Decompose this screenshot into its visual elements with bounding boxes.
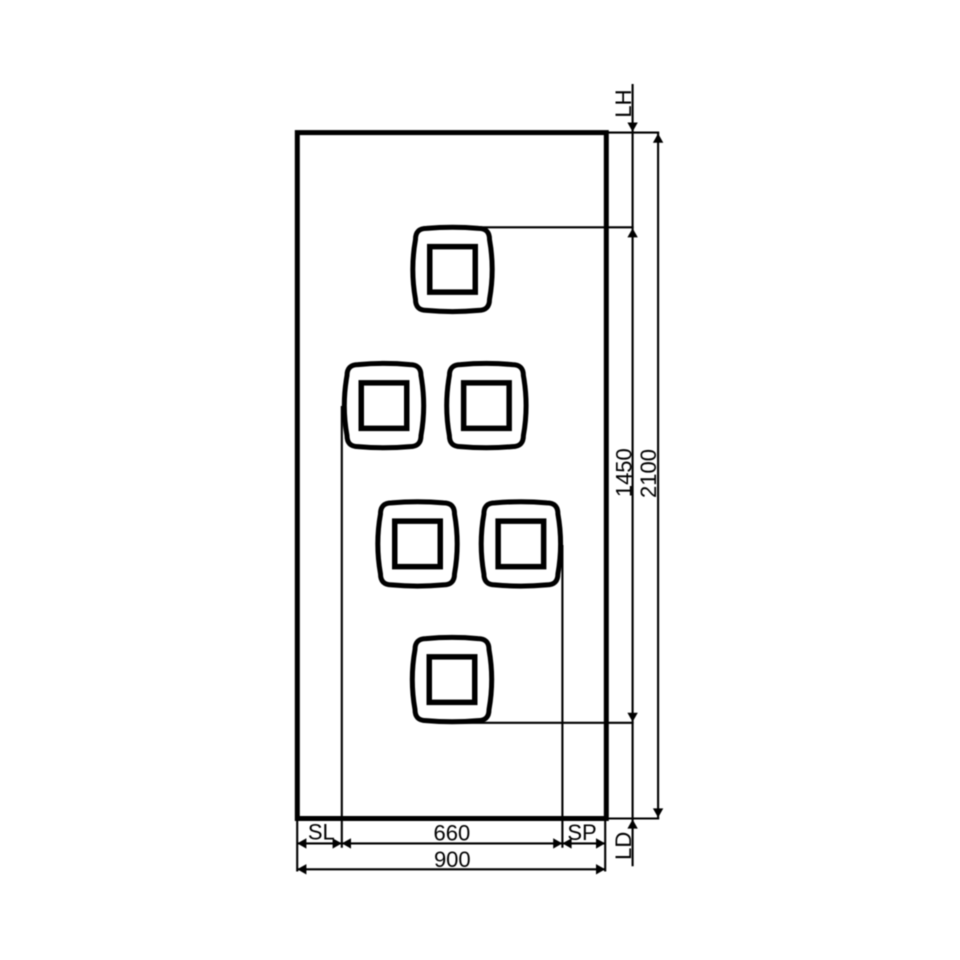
svg-text:660: 660 <box>434 821 471 846</box>
svg-text:2100: 2100 <box>636 449 661 498</box>
svg-text:SP: SP <box>567 820 596 845</box>
svg-text:SL: SL <box>308 819 335 844</box>
svg-text:1450: 1450 <box>611 448 636 497</box>
svg-text:LH: LH <box>611 90 636 118</box>
svg-text:LD: LD <box>611 832 636 860</box>
svg-text:900: 900 <box>434 847 471 872</box>
